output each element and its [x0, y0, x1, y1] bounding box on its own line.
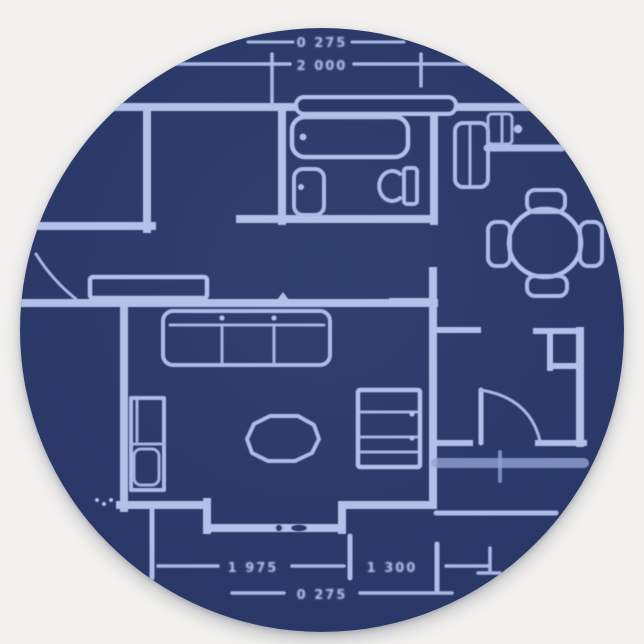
bathtub-outline [292, 117, 408, 157]
door-swing-arc-left [36, 254, 76, 299]
dining-set [488, 190, 602, 296]
toilet-bowl [379, 171, 400, 201]
corner-dots [95, 498, 113, 506]
dim-label-bottom-left: 1 975 [228, 561, 279, 576]
toilet-tank [404, 168, 417, 204]
cabinet-inner-box [134, 449, 159, 485]
wardrobe-outline [358, 390, 420, 467]
dot-mark-2 [102, 502, 106, 506]
wardrobe-shelf-lines [361, 412, 417, 452]
bathroom-fixtures [292, 117, 417, 215]
coffee-table-oval [247, 416, 319, 461]
dimension-lines-top: 0 275 2 000 [150, 36, 468, 104]
kitchen-fixtures [455, 114, 562, 187]
sink-drain-dot [298, 184, 304, 190]
desk-table [90, 277, 207, 298]
dot-mark-1 [95, 498, 99, 502]
wall-dining-corner-jog [550, 331, 580, 368]
sofa-cushion-lines [170, 325, 324, 362]
dining-table [509, 209, 581, 277]
stove-burner-dot [514, 125, 522, 133]
bathtub-faucet-dot [300, 134, 307, 141]
dot-mark-3 [109, 498, 113, 502]
dim-corner-bottom-far-right [478, 548, 500, 573]
wardrobe-knob-dot-2 [409, 435, 414, 440]
floor-plan-blueprint: 0 275 2 000 1 975 1 300 0 275 [20, 28, 624, 632]
dim-label-top-primary: 2 000 [297, 59, 348, 74]
window-top [296, 97, 456, 114]
kitchen-appliance-box [488, 114, 512, 144]
dining-chair-left [488, 222, 510, 266]
window-frame [296, 97, 456, 114]
dim-label-top-secondary: 0 275 [297, 36, 348, 51]
door-swing-arc-right [481, 390, 540, 441]
sofa-outline [163, 311, 330, 365]
porch-entry [436, 390, 584, 513]
sink-outline [294, 169, 324, 215]
round-blueprint-sticker: 0 275 2 000 1 975 1 300 0 275 [20, 28, 624, 632]
dim-label-bottom-right: 1 300 [367, 561, 418, 576]
dining-chair-right [580, 222, 602, 266]
sofa-knob-dot-1 [219, 315, 224, 320]
product-photo: 0 275 2 000 1 975 1 300 0 275 [0, 0, 644, 644]
wall-arrow-bump [274, 292, 292, 304]
dim-label-bottom-secondary: 0 275 [297, 588, 348, 603]
sofa-knob-dot-2 [271, 315, 276, 320]
wardrobe-knob-dot-1 [409, 411, 414, 416]
living-room-furniture [36, 254, 420, 506]
entry-door-dot [276, 525, 282, 531]
entry-door-lens [291, 525, 307, 532]
